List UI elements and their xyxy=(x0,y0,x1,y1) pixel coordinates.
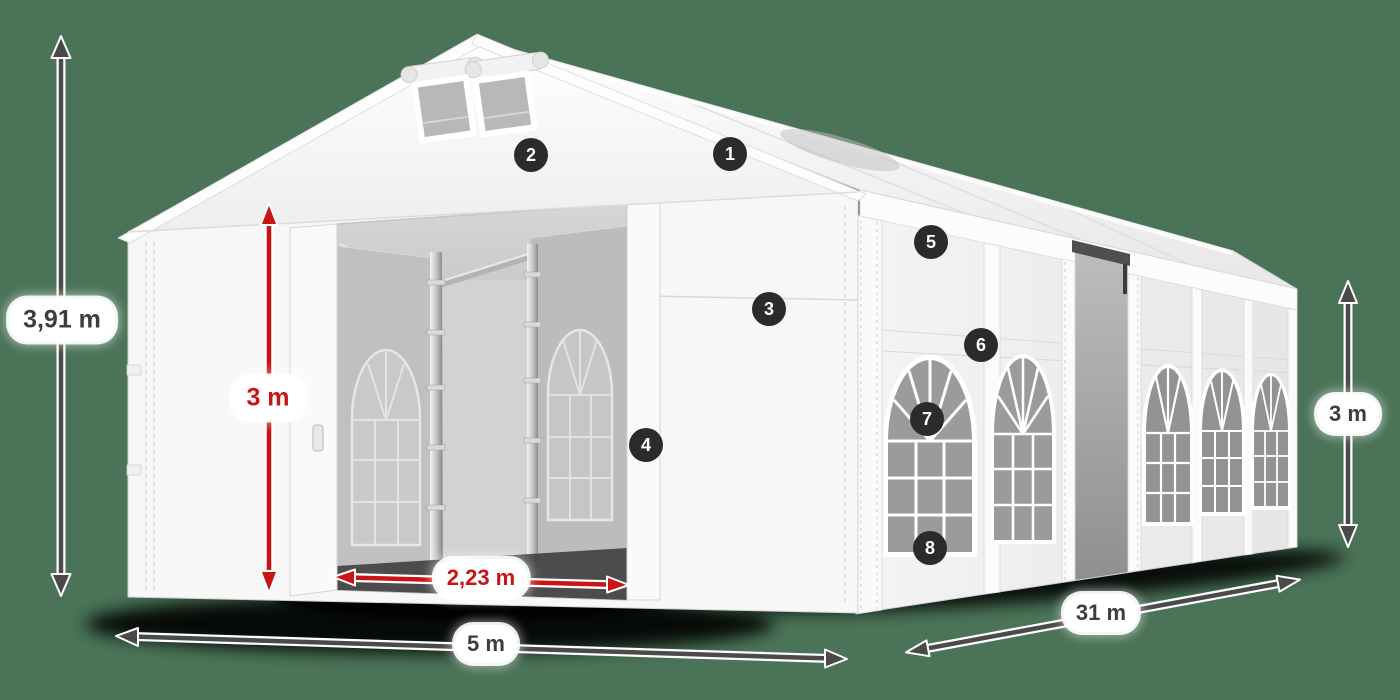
interior-left-door-panel xyxy=(337,246,432,594)
interior-far-wall xyxy=(443,280,529,560)
badge-5: 5 xyxy=(914,225,948,259)
side-window-3 xyxy=(1142,364,1194,526)
interior-right-door-panel xyxy=(530,226,627,600)
front-door-pillar-right xyxy=(627,202,660,600)
side-window-1 xyxy=(883,355,977,557)
side-window-4 xyxy=(1198,368,1246,516)
front-width-label: 5 m xyxy=(455,625,517,663)
side-length-label: 31 m xyxy=(1064,594,1138,632)
door-handle xyxy=(313,425,323,451)
badge-1: 1 xyxy=(713,137,747,171)
side-pillar xyxy=(1062,259,1075,582)
badge-4: 4 xyxy=(629,428,663,462)
total-height-label: 3,91 m xyxy=(9,299,115,342)
scene: 3,91 m 3 m 2,23 m 5 m 31 m 3 m 1 2 3 4 5… xyxy=(0,0,1400,700)
side-window-2 xyxy=(990,354,1056,544)
side-pillar xyxy=(1128,274,1141,572)
side-door-opening xyxy=(1072,240,1130,580)
inner-height-label: 3 m xyxy=(232,377,303,420)
door-width-label: 2,23 m xyxy=(435,559,528,597)
badge-3: 3 xyxy=(752,292,786,326)
badge-7: 7 xyxy=(910,402,944,436)
badge-6: 6 xyxy=(964,328,998,362)
front-door-opening xyxy=(337,204,627,600)
vent-window-left xyxy=(411,74,477,143)
vent-window-right xyxy=(472,70,538,137)
badge-8: 8 xyxy=(913,531,947,565)
side-window-5 xyxy=(1250,373,1292,510)
tent-diagram xyxy=(0,0,1400,700)
side-height-label: 3 m xyxy=(1317,395,1379,433)
side-pillar-corner xyxy=(856,215,882,614)
badge-2: 2 xyxy=(514,138,548,172)
